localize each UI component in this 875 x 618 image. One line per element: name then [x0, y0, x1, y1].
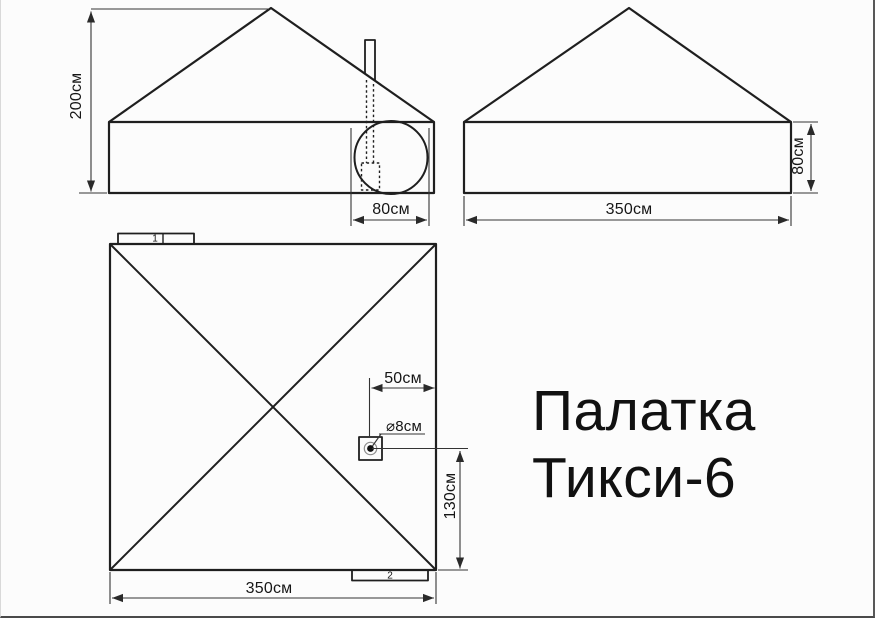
stove-hidden-outline	[362, 163, 380, 190]
drawing-title-line2: Тикси-6	[532, 445, 756, 512]
pipe-offset-bottom-dimension-label: 130см	[442, 473, 460, 520]
plan-tab-2-label: 2	[387, 570, 393, 581]
front-view	[109, 8, 434, 194]
plan-width-dimension-label: 350см	[246, 580, 293, 598]
drawing-title: Палатка Тикси-6	[532, 378, 756, 513]
side-wall-height-dimension-label: 80см	[790, 137, 808, 175]
side-roof-outline	[464, 8, 791, 122]
technical-drawing-canvas	[1, 0, 875, 618]
plan-tab-1-label: 1	[152, 234, 158, 245]
front-roof-outline	[109, 8, 434, 122]
pipe-leader-line	[373, 434, 382, 446]
front-door-width-dimension-label: 80см	[372, 201, 410, 219]
plan-view	[110, 234, 436, 581]
side-wall-outline	[464, 122, 791, 193]
drawing-title-line1: Палатка	[532, 378, 756, 445]
side-view	[464, 8, 791, 193]
front-wall-outline	[109, 122, 434, 193]
tent-drawing-sheet: 200см 80см 350см 80см 1 2 50см ⌀8см 130с…	[0, 0, 875, 618]
front-height-dimension-label: 200см	[68, 73, 86, 120]
pipe-offset-right-dimension-label: 50см	[384, 370, 422, 388]
side-width-dimension-label: 350см	[606, 201, 653, 219]
chimney-hidden-lines	[362, 80, 380, 190]
pipe-hole-diameter-label: ⌀8см	[386, 417, 422, 435]
door-circle	[355, 121, 428, 194]
